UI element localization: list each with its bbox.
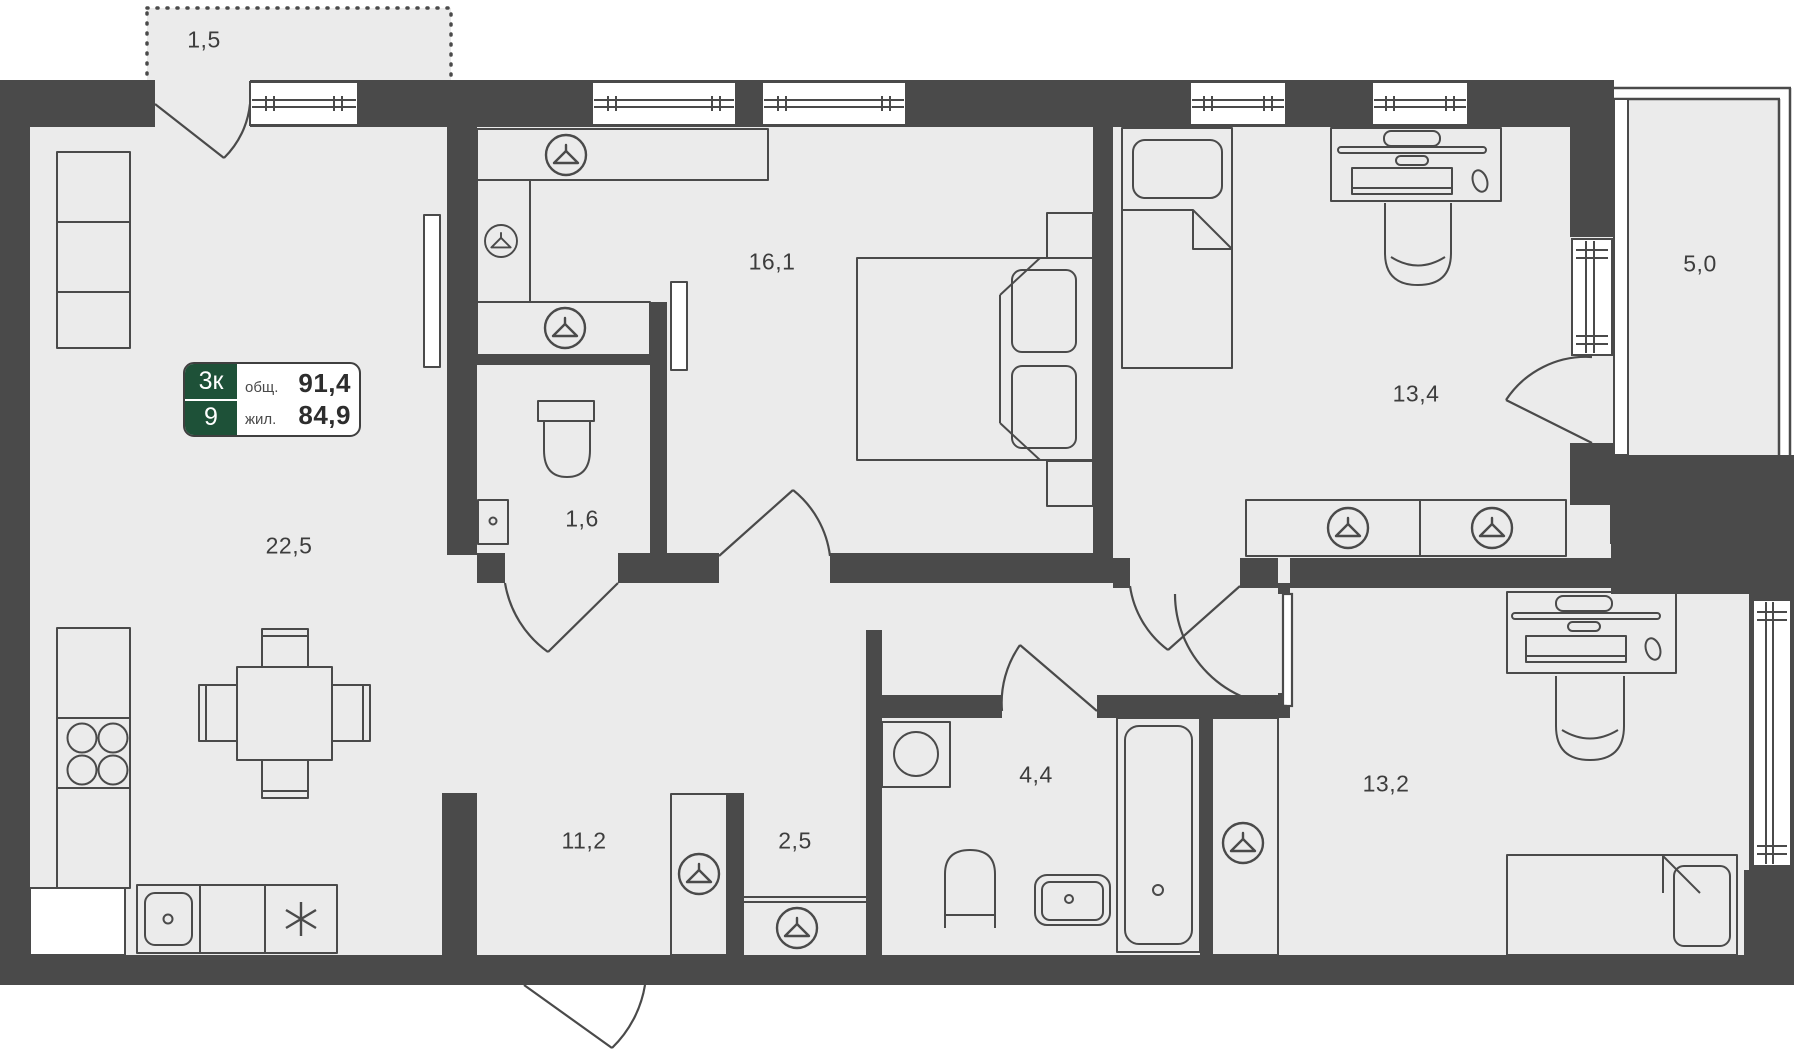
window: [592, 82, 736, 125]
wall-livingroom-bedroom: [447, 127, 477, 555]
wall-left: [0, 80, 30, 985]
wall-wc-top: [477, 355, 650, 365]
badge-left-column: 3к 9: [185, 364, 237, 435]
door-leaf-room132: [1283, 594, 1292, 706]
door-entrance: [524, 985, 645, 1048]
label-room134: 13,4: [1393, 381, 1440, 408]
total-area-value: 91,4: [298, 368, 351, 399]
unit-info-badge: 3к 9 общ. 91,4 жил. 84,9: [183, 362, 361, 437]
badge-total-area-row: общ. 91,4: [245, 368, 351, 399]
total-area-label: общ.: [245, 379, 278, 396]
radiator-panel: [424, 215, 440, 367]
window: [250, 82, 358, 125]
label-wc: 1,6: [565, 506, 598, 533]
window: [1372, 82, 1468, 125]
label-hallway: 11,2: [561, 828, 606, 855]
living-area-label: жил.: [245, 411, 276, 428]
window: [762, 82, 906, 125]
wall-bathroom-top-left: [882, 695, 1002, 718]
label-room132: 13,2: [1363, 771, 1410, 798]
badge-rooms-count: 3к: [199, 369, 224, 394]
label-bathroom: 4,4: [1019, 762, 1052, 789]
wall-hallway-corridor: [727, 793, 744, 955]
label-balcony-right: 5,0: [1683, 251, 1716, 278]
wall-bedroom-room134: [1093, 127, 1113, 583]
wall-corner-bottom-right: [1744, 870, 1794, 985]
wall-wc-right: [650, 302, 667, 583]
wall-bathtub-closet: [1200, 718, 1212, 955]
window-room134-balcony: [1572, 239, 1612, 355]
wall-corridor-bathroom: [866, 630, 882, 955]
window: [1190, 82, 1286, 125]
window-room132: [1753, 600, 1791, 866]
badge-divider: [185, 399, 237, 401]
label-kitchen-living: 22,5: [266, 533, 313, 560]
label-balcony-top-left: 1,5: [187, 27, 220, 54]
label-bedroom: 16,1: [749, 249, 796, 276]
label-corridor: 2,5: [778, 828, 811, 855]
wall-bottom: [0, 955, 1744, 985]
living-area-value: 84,9: [298, 400, 351, 431]
wall-bathroom-top-right: [1097, 695, 1278, 718]
badge-living-area-row: жил. 84,9: [245, 400, 351, 431]
kitchen-shaft: [30, 888, 125, 955]
badge-floor-number: 9: [204, 405, 218, 430]
floor-plan-drawing: [0, 0, 1794, 1052]
floor-areas: [30, 8, 1780, 985]
wall-balcony-partition: [1570, 80, 1614, 237]
badge-areas: общ. 91,4 жил. 84,9: [237, 364, 359, 435]
radiator-panel: [671, 282, 687, 370]
floor-plan: 1,5 22,5 16,1 1,6 11,2 2,5 4,4 13,4 13,2…: [0, 0, 1794, 1052]
